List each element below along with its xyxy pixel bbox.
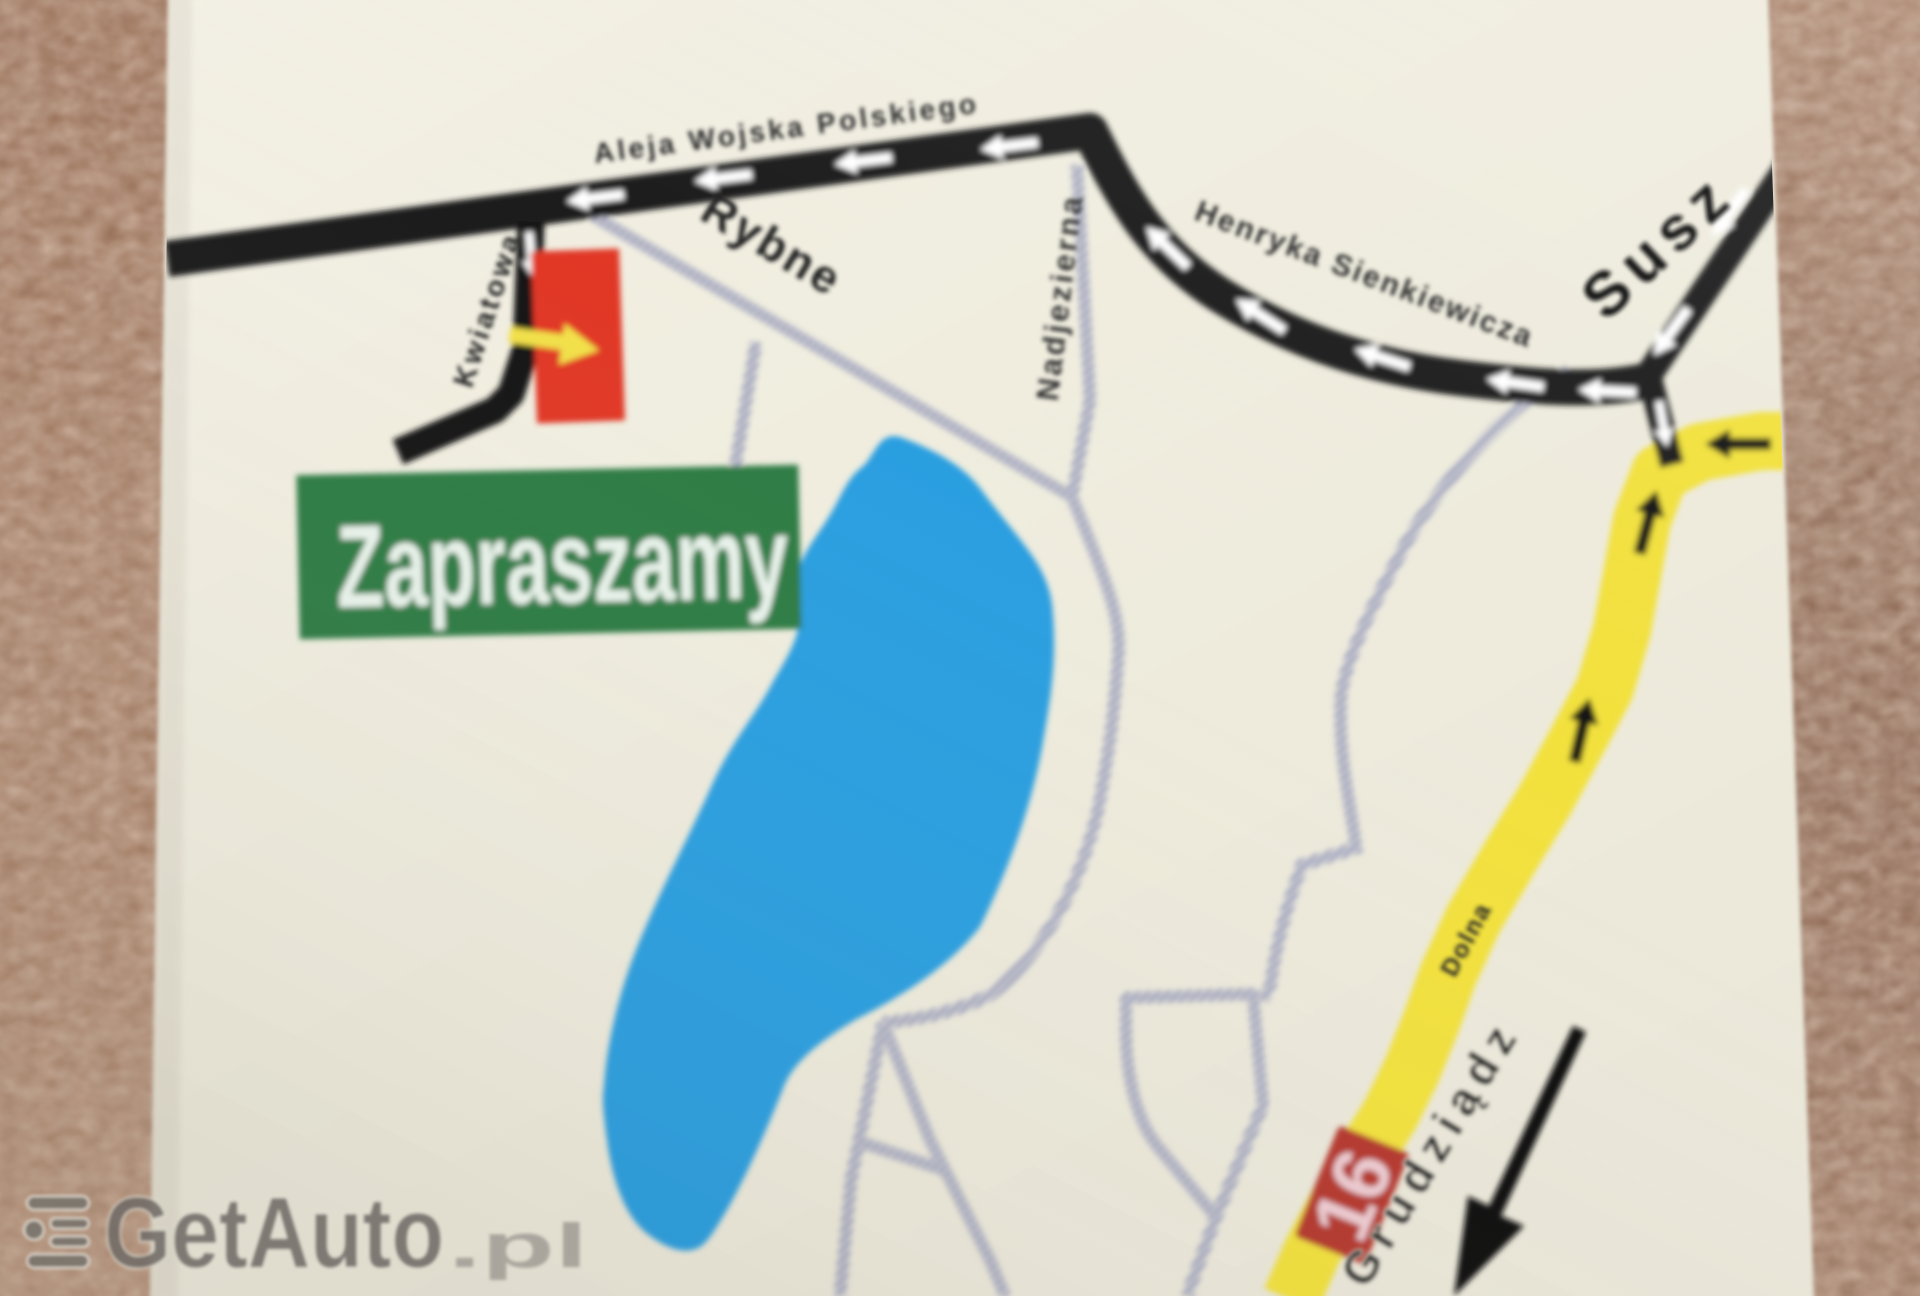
svg-text:GetAuto: GetAuto — [104, 1177, 444, 1289]
svg-text:.pl: .pl — [448, 1212, 588, 1281]
